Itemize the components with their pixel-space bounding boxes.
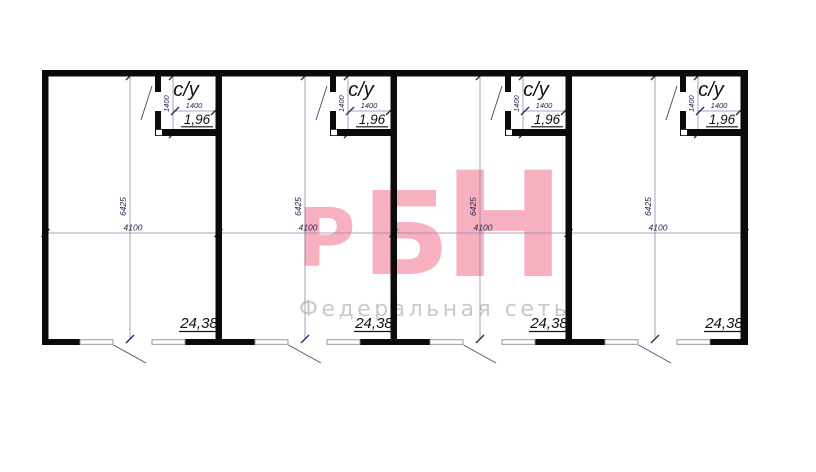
entry-door-swing-line — [464, 345, 497, 363]
unit-height-dim-label: 6425 — [468, 197, 478, 216]
units-layer: с/у 1400 1400 1,96 24,38 6425 4100 — [47, 70, 747, 363]
bathroom-wall-stub-top — [155, 76, 161, 92]
bathroom-area-label: 1,96 — [359, 112, 386, 127]
entry-door-leaf — [677, 340, 710, 345]
entry-door-leaf — [255, 340, 288, 345]
bathroom-door-swing-line — [316, 86, 327, 120]
bathroom-wall-stub-top — [680, 76, 686, 92]
unit-height-dim-label: 6425 — [643, 197, 653, 216]
watermark-letter-2: Б — [362, 168, 450, 302]
entry-door-leaf — [152, 340, 185, 345]
room-area-label: 24,38 — [529, 315, 568, 332]
bathroom-depth-dim-label: 1400 — [337, 94, 346, 112]
bathroom-bottom-wall — [680, 129, 747, 136]
floor-plan-page: Р Б Н Федеральная сеть — [0, 0, 816, 472]
bathroom-door-swing-line — [491, 86, 502, 120]
bathroom-wall-stub-bottom — [680, 111, 686, 129]
bottom-wall-right-segment — [360, 339, 397, 345]
bathroom-depth-dim-label: 1400 — [687, 94, 696, 112]
bathroom-depth-dim-label: 1400 — [512, 94, 521, 112]
bathroom-bottom-wall — [505, 129, 572, 136]
bathroom-bottom-wall — [330, 129, 397, 136]
bathroom-label: с/у — [523, 79, 550, 101]
floor-plan-unit: с/у 1400 1400 1,96 24,38 6425 4100 — [572, 70, 747, 363]
bathroom-label: с/у — [698, 79, 725, 101]
bottom-wall-left-segment — [572, 339, 605, 345]
unit-height-dim-label: 6425 — [118, 197, 128, 216]
room-area-label: 24,38 — [179, 315, 218, 332]
outer-wall-right — [742, 70, 749, 345]
unit-width-dim-label: 4100 — [124, 223, 143, 233]
floor-plan-canvas: Р Б Н Федеральная сеть — [0, 0, 816, 472]
outer-wall-left — [42, 70, 49, 345]
entry-door-leaf — [502, 340, 535, 345]
bathroom-width-dim-label: 1400 — [186, 101, 204, 110]
entry-door-swing-line — [114, 345, 147, 363]
entry-door-leaf — [430, 340, 463, 345]
bathroom-area-label: 1,96 — [184, 112, 211, 127]
entry-door-swing-line — [289, 345, 322, 363]
bathroom-label: с/у — [348, 79, 375, 101]
bathroom-wall-notch — [681, 130, 687, 135]
bottom-wall-right-segment — [710, 339, 747, 345]
bottom-wall-left-segment — [397, 339, 430, 345]
outer-wall-top — [42, 70, 748, 77]
unit-height-dim-label: 6425 — [293, 197, 303, 216]
bottom-wall-left-segment — [222, 339, 255, 345]
bathroom-label: с/у — [173, 79, 200, 101]
bathroom-wall-notch — [331, 130, 337, 135]
unit-width-dim-label: 4100 — [474, 223, 493, 233]
unit-separator-wall — [216, 70, 223, 345]
watermark-letter-3: Н — [443, 141, 565, 311]
unit-separator-wall — [391, 70, 398, 345]
bottom-wall-left-segment — [47, 339, 80, 345]
unit-width-dim-label: 4100 — [649, 223, 668, 233]
floor-plan-unit: с/у 1400 1400 1,96 24,38 6425 4100 — [47, 70, 222, 363]
bottom-wall-right-segment — [535, 339, 572, 345]
bathroom-area-label: 1,96 — [534, 112, 561, 127]
bathroom-depth-dim-label: 1400 — [162, 94, 171, 112]
entry-door-swing-line — [639, 345, 672, 363]
bathroom-width-dim-label: 1400 — [711, 101, 729, 110]
entry-door-leaf — [605, 340, 638, 345]
bathroom-width-dim-label: 1400 — [361, 101, 379, 110]
bathroom-wall-stub-bottom — [330, 111, 336, 129]
bathroom-door-swing-line — [141, 86, 152, 120]
bathroom-wall-notch — [506, 130, 512, 135]
watermark: Р Б Н Федеральная сеть — [297, 141, 570, 322]
room-area-label: 24,38 — [354, 315, 393, 332]
bathroom-wall-stub-bottom — [155, 111, 161, 129]
room-area-label: 24,38 — [704, 315, 743, 332]
unit-width-dim-label: 4100 — [299, 223, 318, 233]
watermark-letter-1: Р — [297, 192, 356, 285]
bathroom-wall-stub-top — [330, 76, 336, 92]
entry-door-leaf — [80, 340, 113, 345]
bathroom-wall-stub-top — [505, 76, 511, 92]
bathroom-bottom-wall — [155, 129, 222, 136]
bathroom-wall-notch — [156, 130, 162, 135]
bathroom-door-swing-line — [666, 86, 677, 120]
unit-separator-wall — [566, 70, 573, 345]
bottom-wall-right-segment — [185, 339, 222, 345]
bathroom-wall-stub-bottom — [505, 111, 511, 129]
bathroom-width-dim-label: 1400 — [536, 101, 554, 110]
bathroom-area-label: 1,96 — [709, 112, 736, 127]
entry-door-leaf — [327, 340, 360, 345]
